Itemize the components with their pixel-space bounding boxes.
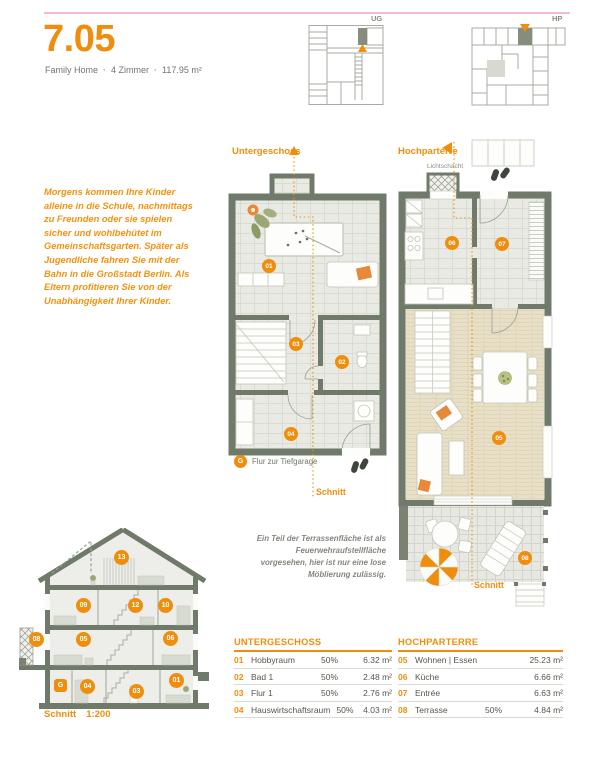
room-number: 08 (398, 705, 412, 715)
section-marker-10: 10 (158, 598, 173, 613)
section-marker-03: 03 (129, 684, 144, 699)
table-row: 07 Entrée 6.63 m² (398, 685, 563, 702)
subtitle-rooms: 4 Zimmer (111, 65, 149, 75)
coffee-table (449, 441, 464, 475)
ug-entrance-gap (342, 448, 370, 456)
section-marker-09: 09 (76, 598, 91, 613)
footnote-marker: G (234, 455, 247, 468)
section-caption-label: Schnitt (44, 709, 76, 720)
room-share: 50% (315, 655, 338, 665)
room-area: 2.48 m² (363, 672, 392, 682)
section-marker-04: 04 (80, 679, 95, 694)
room-marker-01: 01 (262, 259, 276, 273)
table-row: 05 Wohnen | Essen 25.23 m² (398, 652, 563, 669)
room-marker-08: 08 (518, 551, 532, 565)
ug-stairs (236, 322, 286, 384)
page-subtitle: Family Home · 4 Zimmer · 117.95 m² (45, 65, 202, 75)
terrace-note: Ein Teil der Terrassenfläche ist als Feu… (250, 533, 386, 581)
hp-entry-walkway (472, 140, 534, 166)
section-marker-06: 06 (163, 631, 178, 646)
subtitle-type: Family Home (45, 65, 98, 75)
room-name: Hobbyraum (248, 655, 315, 665)
room-area: 2.76 m² (363, 688, 392, 698)
hp-entry-gap (480, 190, 508, 199)
subtitle-area: 117.95 m² (162, 65, 202, 75)
table-row: 03 Flur 1 50% 2.76 m² (234, 685, 392, 702)
footprints-icon (350, 457, 369, 473)
table-ug-title: UNTERGESCHOSS (234, 637, 392, 652)
room-number: 07 (398, 688, 412, 698)
room-marker-02: 02 (335, 355, 349, 369)
floorplan-hochparterre (396, 138, 572, 608)
section-marker-G: G (54, 679, 67, 692)
sofa (417, 433, 442, 495)
room-number: 01 (234, 655, 248, 665)
section-marker-13: 13 (114, 550, 129, 565)
keyplan-ug-label: UG (371, 14, 382, 23)
table-row: 01 Hobbyraum 50% 6.32 m² (234, 652, 392, 669)
page-title: 7.05 (43, 18, 115, 61)
room-name: Terrasse (412, 705, 479, 715)
keyplan-ug (308, 24, 388, 106)
table-hochparterre: HOCHPARTERRE 05 Wohnen | Essen 25.23 m² … (398, 637, 563, 718)
room-number: 06 (398, 672, 412, 682)
room-name: Bad 1 (248, 672, 315, 682)
room-share: 50% (315, 672, 338, 682)
table-row: 02 Bad 1 50% 2.48 m² (234, 669, 392, 686)
section-marker-05: 05 (76, 632, 91, 647)
section-marker-01: 01 (169, 673, 184, 688)
table-row: 06 Küche 6.66 m² (398, 669, 563, 686)
keyplan-ug-outline (309, 26, 383, 105)
table-untergeschoss: UNTERGESCHOSS 01 Hobbyraum 50% 6.32 m² 0… (234, 637, 392, 718)
subtitle-separator: · (103, 65, 106, 75)
room-number: 05 (398, 655, 412, 665)
intro-text: Morgens kommen Ihre Kinder alleine in di… (44, 186, 198, 308)
footprints-icon (490, 166, 511, 181)
subtitle-separator: · (154, 65, 157, 75)
table-hp-title: HOCHPARTERRE (398, 637, 563, 652)
section-caption-scale: 1:200 (86, 709, 110, 720)
section-marker-12: 12 (128, 598, 143, 613)
section-caption: Schnitt 1:200 (44, 709, 111, 720)
room-area: 4.84 m² (534, 705, 563, 715)
room-share: 50% (330, 705, 353, 715)
room-marker-06: 06 (445, 236, 459, 250)
hp-stairs (415, 311, 450, 393)
room-area: 6.32 m² (363, 655, 392, 665)
room-number: 02 (234, 672, 248, 682)
keyplan-hp-label: HP (552, 14, 562, 23)
table-row: 04 Hauswirtschaftsraum 50% 4.03 m² (234, 702, 392, 719)
room-share: 50% (315, 688, 338, 698)
room-name: Wohnen | Essen (412, 655, 479, 665)
room-marker-07: 07 (495, 237, 509, 251)
room-number: 04 (234, 705, 248, 715)
room-name: Entrée (412, 688, 479, 698)
keyplan-ug-highlighted-unit (358, 28, 367, 45)
room-marker-03: 03 (289, 337, 303, 351)
room-marker-04: 04 (284, 427, 298, 441)
wardrobe (529, 202, 544, 280)
room-name: Flur 1 (248, 688, 315, 698)
keyplan-hp (466, 24, 572, 106)
top-divider (44, 12, 570, 14)
room-area: 6.66 m² (534, 672, 563, 682)
room-name: Hauswirtschaftsraum (248, 705, 330, 715)
terrace-steps (514, 582, 546, 606)
room-marker-05: 05 (492, 431, 506, 445)
room-number: 03 (234, 688, 248, 698)
ug-footnote: G Flur zur Tiefgarage (234, 455, 317, 468)
section-marker-08: 08 (29, 632, 44, 647)
billiard-table (265, 223, 343, 256)
room-area: 25.23 m² (529, 655, 563, 665)
kitchen-window (430, 191, 456, 199)
terrace-planter (19, 658, 26, 665)
room-share: 50% (479, 705, 502, 715)
table-row: 08 Terrasse 50% 4.84 m² (398, 702, 563, 719)
room-name: Küche (412, 672, 479, 682)
room-area: 4.03 m² (363, 705, 392, 715)
room-area: 6.63 m² (534, 688, 563, 698)
parasol-icon (420, 548, 458, 586)
footnote-text: Flur zur Tiefgarage (252, 457, 317, 466)
keyplan-hp-shaded-room (487, 60, 505, 77)
